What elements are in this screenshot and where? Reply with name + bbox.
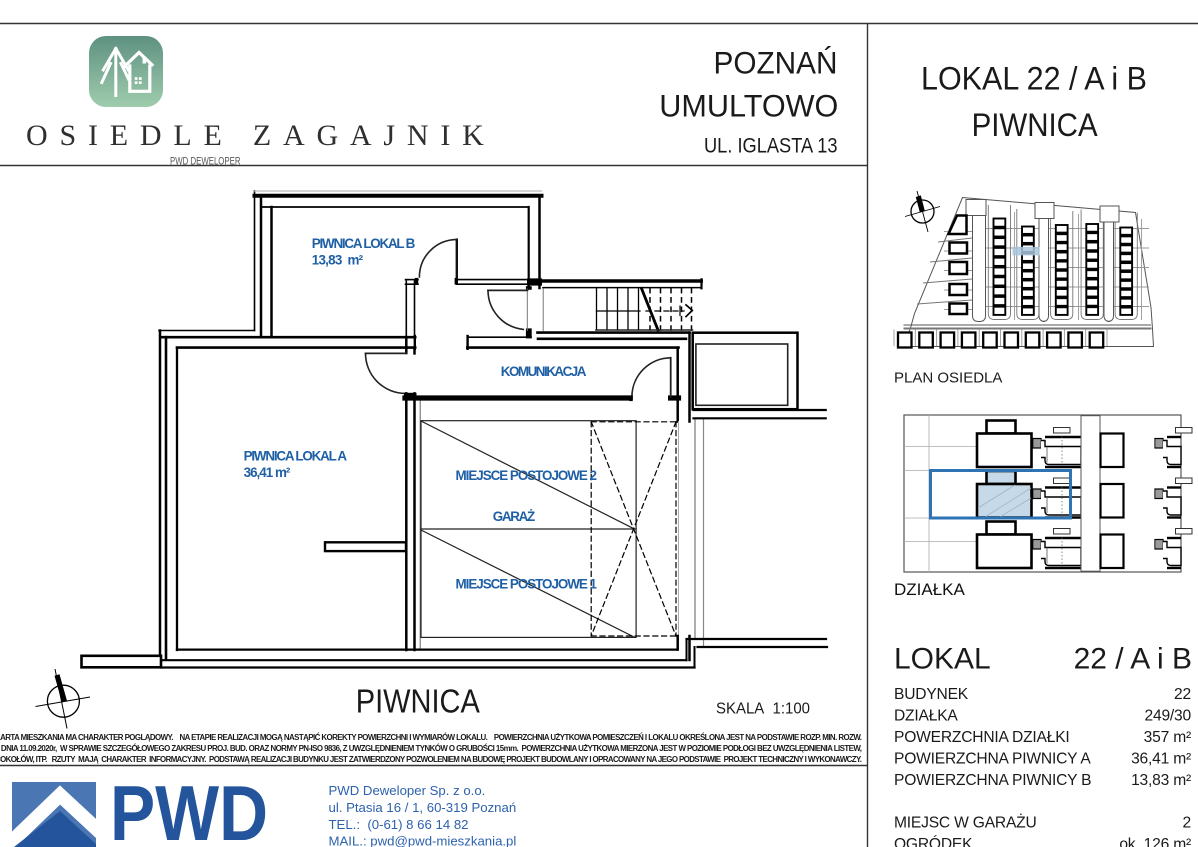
svg-text:249/30: 249/30 [1145, 708, 1192, 725]
svg-text:TEL.: (0-61) 8 66 14 82: TEL.: (0-61) 8 66 14 82 [329, 817, 469, 832]
svg-text:GARAŻ: GARAŻ [493, 509, 536, 524]
svg-text:POWERZCHNIA DZIAŁKI: POWERZCHNIA DZIAŁKI [894, 729, 1070, 746]
svg-text:13,83 m²: 13,83 m² [312, 253, 364, 268]
svg-text:357 m²: 357 m² [1144, 729, 1191, 746]
svg-text:PWD: PWD [110, 769, 268, 847]
svg-text:SKALA 1:100: SKALA 1:100 [716, 701, 810, 718]
svg-text:2: 2 [1183, 815, 1191, 832]
svg-text:DZIAŁKA: DZIAŁKA [894, 708, 958, 725]
svg-text:KARTA MIESZKANIA MA CHARAKTER: KARTA MIESZKANIA MA CHARAKTER POGLĄDOWY.… [0, 733, 862, 742]
svg-text:MIEJSCE POSTOJOWE 2: MIEJSCE POSTOJOWE 2 [456, 468, 598, 483]
svg-text:COKOŁÓW, ITP. RZUTY MAJĄ C: COKOŁÓW, ITP. RZUTY MAJĄ CHARAKTER INFOR… [0, 755, 862, 764]
svg-text:PIWNICA LOKAL A: PIWNICA LOKAL A [244, 449, 348, 464]
svg-text:36,41 m²: 36,41 m² [1131, 751, 1191, 768]
svg-text:LOKAL: LOKAL [894, 643, 991, 676]
svg-text:OSIEDLE ZAGAJNIK: OSIEDLE ZAGAJNIK [26, 119, 496, 152]
svg-text:ul. Ptasia 16 / 1, 60-319 Pozn: ul. Ptasia 16 / 1, 60-319 Poznań [329, 800, 517, 815]
svg-text:OGRÓDEK: OGRÓDEK [894, 834, 973, 847]
svg-text:PIWNICA: PIWNICA [972, 107, 1098, 143]
svg-text:POWIERZCHNA PIWNICY B: POWIERZCHNA PIWNICY B [894, 772, 1091, 789]
svg-text:LOKAL 22 / A i B: LOKAL 22 / A i B [921, 61, 1147, 97]
svg-text:PLAN OSIEDLA: PLAN OSIEDLA [894, 370, 1002, 387]
svg-text:MIEJSC W GARAŻU: MIEJSC W GARAŻU [894, 813, 1037, 832]
svg-text:Z DNIA 11.09.2020r, W SPRAWIE: Z DNIA 11.09.2020r, W SPRAWIE SZCZEGÓŁOW… [0, 744, 862, 753]
svg-text:UL. IGLASTA 13: UL. IGLASTA 13 [704, 135, 838, 158]
svg-text:22 / A i B: 22 / A i B [1074, 643, 1192, 676]
svg-text:DZIAŁKA: DZIAŁKA [894, 580, 966, 599]
svg-text:POZNAŃ: POZNAŃ [714, 45, 838, 81]
svg-text:PIWNICA: PIWNICA [356, 684, 481, 721]
svg-text:22: 22 [1174, 686, 1191, 703]
svg-text:PIWNICA LOKAL B: PIWNICA LOKAL B [312, 236, 416, 251]
svg-text:MAIL.: pwd@pwd-mieszkania.pl: MAIL.: pwd@pwd-mieszkania.pl [329, 834, 517, 847]
svg-text:36,41 m²: 36,41 m² [244, 465, 291, 480]
svg-text:BUDYNEK: BUDYNEK [894, 686, 969, 703]
svg-text:POWIERZCHNA PIWNICY A: POWIERZCHNA PIWNICY A [894, 751, 1091, 768]
svg-text:ok. 126 m²: ok. 126 m² [1119, 836, 1191, 847]
svg-text:PWD DEWELOPER: PWD DEWELOPER [170, 156, 241, 168]
svg-text:KOMUNIKACJA: KOMUNIKACJA [501, 364, 587, 379]
svg-text:PWD Deweloper Sp. z o.o.: PWD Deweloper Sp. z o.o. [329, 783, 486, 798]
svg-text:MIEJSCE POSTOJOWE 1: MIEJSCE POSTOJOWE 1 [456, 577, 598, 592]
svg-text:13,83 m²: 13,83 m² [1131, 772, 1191, 789]
svg-text:UMULTOWO: UMULTOWO [659, 88, 838, 124]
